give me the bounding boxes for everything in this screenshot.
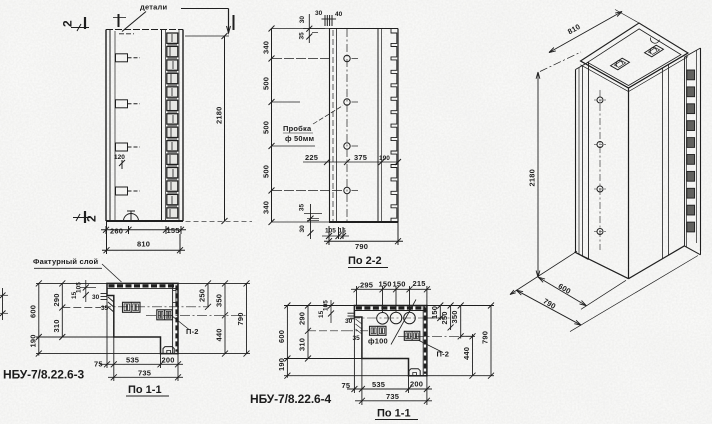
svg-text:ф 50мм: ф 50мм: [285, 134, 315, 143]
svg-text:290: 290: [52, 293, 61, 306]
svg-text:30: 30: [299, 225, 306, 233]
svg-text:детали: детали: [140, 3, 167, 12]
svg-text:15: 15: [339, 228, 347, 235]
svg-text:35: 35: [101, 305, 109, 312]
svg-text:190: 190: [28, 334, 37, 347]
svg-text:ф100: ф100: [368, 337, 388, 346]
svg-text:790: 790: [481, 331, 490, 344]
svg-text:По 1-1: По 1-1: [377, 408, 411, 420]
svg-text:2180: 2180: [528, 169, 537, 187]
svg-text:150: 150: [379, 279, 392, 288]
svg-text:350: 350: [450, 310, 459, 323]
svg-text:350: 350: [215, 294, 224, 307]
svg-text:500: 500: [262, 165, 271, 178]
svg-text:35: 35: [299, 32, 306, 40]
svg-text:150: 150: [393, 279, 406, 288]
svg-text:215: 215: [413, 279, 426, 288]
svg-text:190: 190: [379, 155, 390, 162]
svg-text:2180: 2180: [215, 107, 224, 125]
svg-text:790: 790: [236, 312, 245, 325]
svg-text:340: 340: [262, 201, 271, 214]
svg-text:П-2: П-2: [186, 327, 199, 336]
svg-text:250: 250: [198, 289, 207, 302]
svg-text:Фактурный слой: Фактурный слой: [33, 257, 98, 266]
svg-text:735: 735: [386, 392, 399, 401]
svg-text:535: 535: [126, 356, 139, 365]
svg-text:НБУ-7/8.22.6-4: НБУ-7/8.22.6-4: [250, 392, 332, 406]
svg-text:30: 30: [299, 16, 306, 24]
svg-text:35: 35: [353, 335, 361, 342]
svg-text:155: 155: [167, 226, 180, 235]
svg-text:225: 225: [305, 153, 318, 162]
svg-text:40: 40: [335, 11, 343, 18]
svg-text:200: 200: [410, 380, 423, 389]
svg-text:200: 200: [162, 356, 175, 365]
svg-text:735: 735: [138, 368, 151, 377]
svg-text:310: 310: [52, 319, 61, 332]
svg-text:30: 30: [345, 318, 353, 325]
svg-text:75: 75: [94, 360, 103, 369]
svg-text:290: 290: [298, 312, 307, 325]
svg-text:790: 790: [355, 242, 368, 251]
svg-text:Пробка: Пробка: [283, 124, 312, 133]
svg-text:30: 30: [315, 10, 323, 17]
svg-text:2: 2: [85, 215, 99, 222]
svg-text:295: 295: [360, 280, 373, 289]
svg-text:35: 35: [299, 203, 306, 211]
svg-text:375: 375: [354, 153, 367, 162]
svg-text:150: 150: [430, 306, 439, 319]
svg-text:По 2-2: По 2-2: [348, 255, 382, 267]
svg-text:440: 440: [462, 347, 471, 360]
svg-text:310: 310: [298, 338, 307, 351]
svg-text:440: 440: [215, 328, 224, 341]
svg-text:15: 15: [71, 291, 78, 299]
svg-text:120: 120: [114, 154, 125, 161]
svg-text:105: 105: [325, 228, 336, 235]
svg-text:15: 15: [318, 310, 325, 318]
svg-text:810: 810: [137, 240, 150, 249]
svg-text:535: 535: [372, 380, 385, 389]
svg-text:260: 260: [110, 227, 123, 236]
svg-text:2: 2: [61, 20, 75, 27]
svg-text:600: 600: [277, 330, 286, 343]
svg-text:П-2: П-2: [437, 350, 450, 359]
svg-text:30: 30: [92, 294, 100, 301]
svg-text:190: 190: [277, 358, 286, 371]
svg-text:340: 340: [262, 41, 271, 54]
svg-text:600: 600: [28, 305, 37, 318]
svg-text:По 1-1: По 1-1: [128, 384, 162, 396]
svg-text:500: 500: [262, 77, 271, 90]
svg-text:500: 500: [262, 121, 271, 134]
svg-text:НБУ-7/8.22.6-3: НБУ-7/8.22.6-3: [3, 368, 85, 382]
svg-text:75: 75: [342, 381, 351, 390]
